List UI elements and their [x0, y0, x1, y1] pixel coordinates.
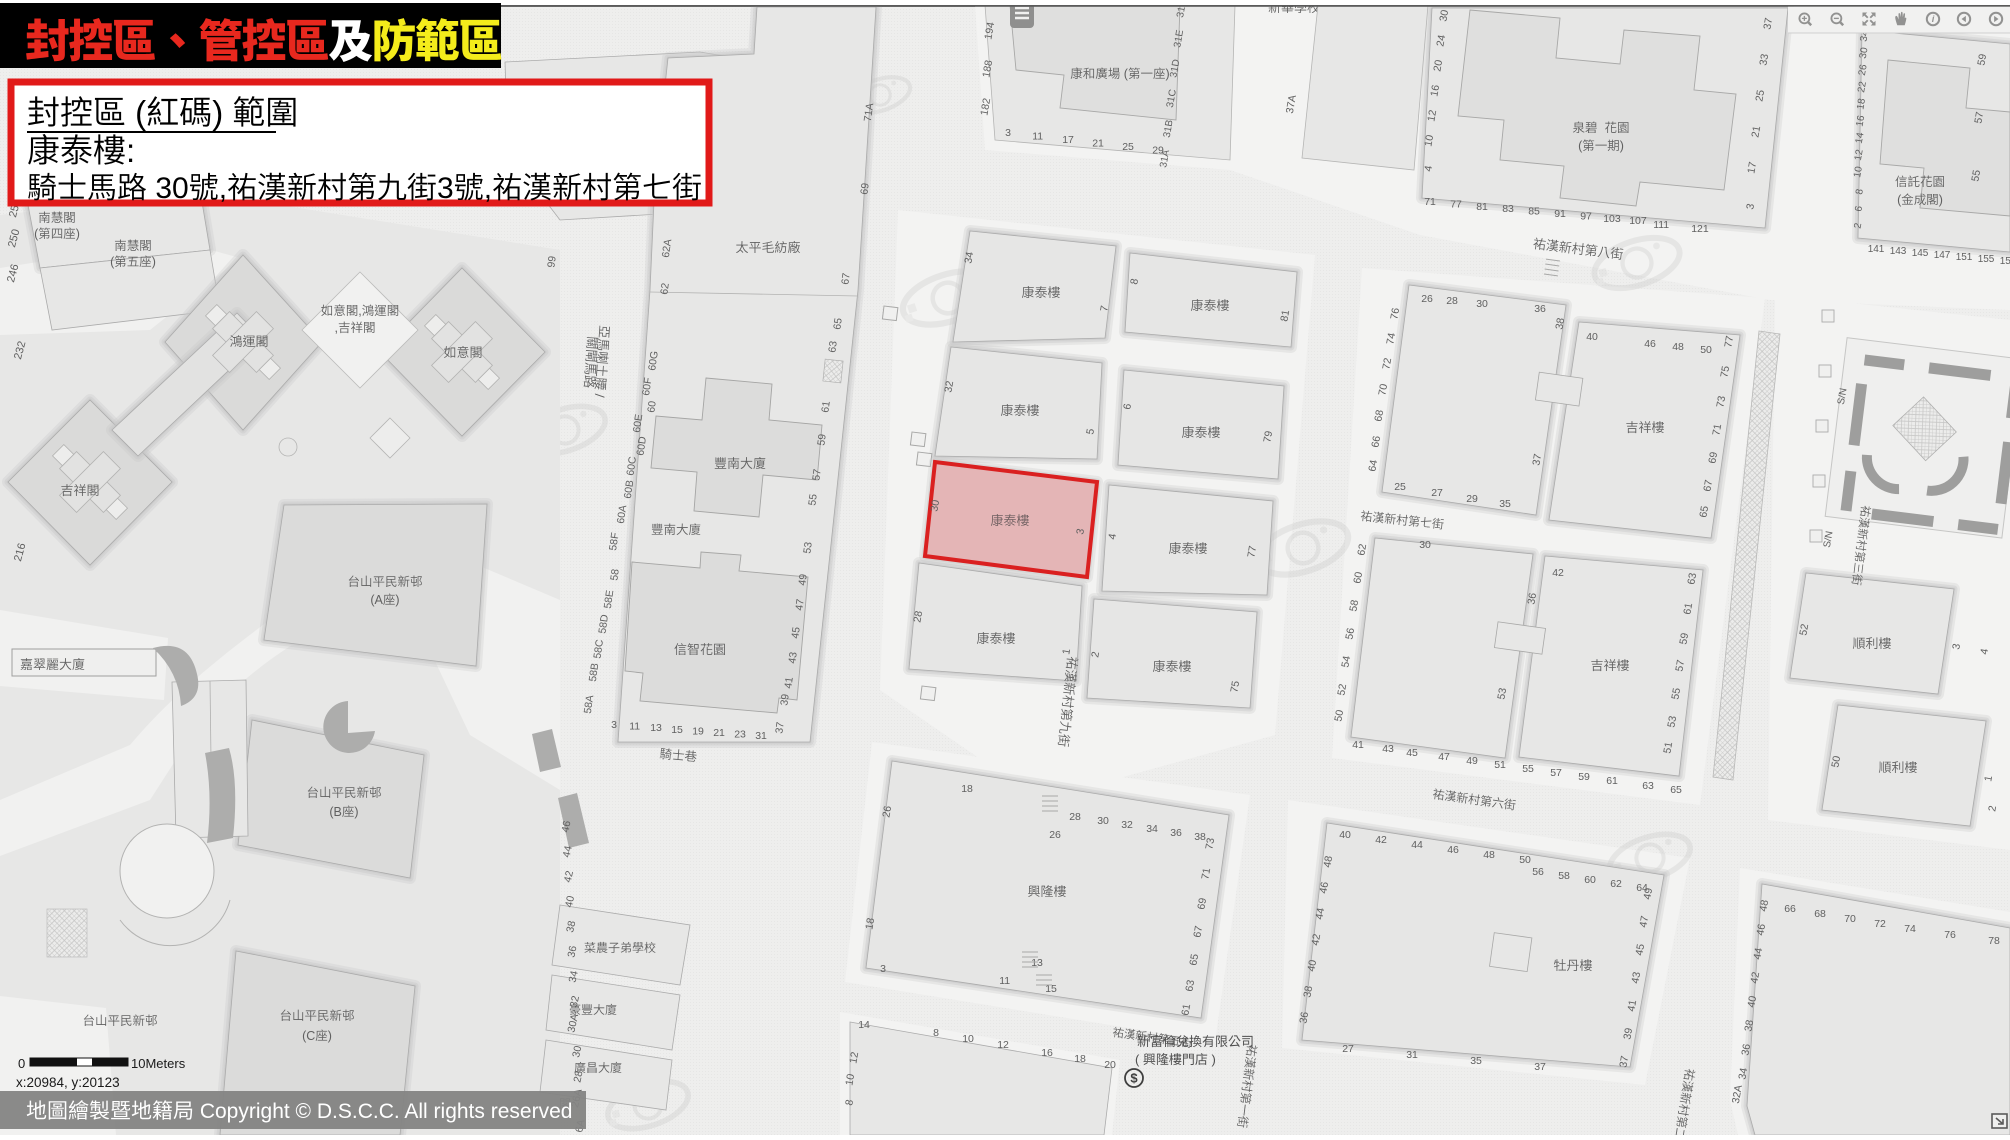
- svg-text:42: 42: [1552, 567, 1564, 579]
- svg-text:38: 38: [1301, 985, 1315, 999]
- svg-text:159: 159: [2000, 256, 2010, 267]
- svg-text:18: 18: [863, 917, 877, 931]
- svg-text:57: 57: [810, 468, 824, 481]
- svg-text:18: 18: [961, 783, 973, 795]
- svg-text:143: 143: [1890, 246, 1907, 257]
- svg-text:26: 26: [880, 805, 894, 819]
- svg-text:155: 155: [1978, 254, 1995, 265]
- svg-text:): ): [1939, 193, 1943, 207]
- svg-text:36: 36: [1525, 592, 1539, 606]
- svg-text:36: 36: [1739, 1043, 1753, 1057]
- svg-text:37: 37: [773, 721, 787, 734]
- svg-text:69: 69: [858, 182, 872, 195]
- svg-text:66: 66: [1784, 903, 1796, 915]
- svg-text:38: 38: [1553, 317, 1567, 331]
- svg-text:111: 111: [1653, 219, 1669, 231]
- svg-text:69: 69: [1195, 897, 1209, 911]
- svg-text:52: 52: [1335, 683, 1349, 697]
- svg-text:58: 58: [1347, 599, 1361, 613]
- svg-text:): ): [354, 805, 358, 819]
- svg-text:): ): [328, 1029, 332, 1043]
- svg-text:73: 73: [1714, 395, 1728, 409]
- svg-text:40: 40: [1339, 829, 1351, 841]
- svg-text:27: 27: [1431, 487, 1443, 499]
- svg-text:72: 72: [1380, 357, 1394, 371]
- svg-text:81: 81: [1476, 201, 1488, 213]
- svg-text:78: 78: [1988, 935, 2000, 947]
- svg-text:107: 107: [1629, 215, 1647, 227]
- svg-text:61: 61: [1179, 1003, 1193, 1017]
- svg-text:141: 141: [1868, 244, 1885, 255]
- svg-text:79: 79: [1261, 430, 1275, 444]
- svg-text:51: 51: [1661, 741, 1675, 755]
- svg-text:40: 40: [1745, 995, 1759, 1009]
- svg-text:48: 48: [1757, 899, 1771, 913]
- svg-text:63: 63: [1685, 572, 1699, 586]
- svg-text:43: 43: [1382, 743, 1394, 755]
- svg-text:): ): [1208, 1052, 1216, 1067]
- svg-text:33: 33: [1757, 53, 1771, 67]
- svg-text:42: 42: [1748, 971, 1762, 985]
- svg-text:65: 65: [1697, 505, 1711, 519]
- svg-text:47: 47: [793, 598, 807, 611]
- svg-text:39: 39: [1621, 1027, 1635, 1041]
- svg-text:59: 59: [1578, 771, 1590, 783]
- svg-text:53: 53: [801, 541, 815, 554]
- svg-text:57: 57: [1972, 111, 1986, 125]
- svg-text:(C: (C: [302, 1029, 315, 1043]
- svg-text:28: 28: [1069, 811, 1081, 823]
- svg-text:11: 11: [629, 721, 640, 733]
- svg-text:56: 56: [1343, 627, 1357, 641]
- svg-text:59: 59: [1975, 53, 1989, 67]
- svg-text:17: 17: [1062, 134, 1074, 146]
- svg-text:34: 34: [962, 251, 976, 265]
- svg-text:3: 3: [611, 719, 617, 731]
- svg-text:103: 103: [1603, 213, 1621, 225]
- svg-text:69: 69: [1706, 451, 1720, 465]
- svg-text:(A: (A: [370, 593, 383, 607]
- svg-text:41: 41: [1352, 739, 1364, 751]
- svg-text:67: 67: [1191, 925, 1205, 939]
- svg-text:46: 46: [1754, 923, 1768, 937]
- svg-text:(: (: [1120, 67, 1128, 81]
- svg-text:27: 27: [1342, 1043, 1354, 1055]
- svg-text:10: 10: [1422, 134, 1436, 148]
- svg-text:83: 83: [1502, 203, 1514, 215]
- svg-text:/: /: [592, 390, 607, 399]
- svg-text:28: 28: [1446, 295, 1458, 307]
- svg-text:58F: 58F: [607, 532, 621, 552]
- svg-text:32: 32: [942, 380, 956, 394]
- svg-text:63: 63: [1642, 780, 1654, 792]
- svg-text:35: 35: [1499, 498, 1511, 510]
- svg-text:50: 50: [1700, 344, 1712, 356]
- svg-text:): ): [212, 94, 232, 131]
- svg-text:43: 43: [1629, 971, 1643, 985]
- svg-text:44: 44: [1751, 947, 1765, 961]
- svg-text:55: 55: [1969, 169, 1983, 183]
- svg-text:45: 45: [1633, 943, 1647, 957]
- svg-text:34: 34: [1736, 1067, 1750, 1081]
- svg-text:): ): [76, 227, 80, 241]
- svg-text:3: 3: [437, 172, 454, 205]
- svg-text:55: 55: [806, 493, 820, 506]
- svg-text:36: 36: [1297, 1011, 1311, 1025]
- svg-text:60: 60: [1351, 571, 1365, 585]
- svg-text:77: 77: [1722, 335, 1736, 349]
- svg-text:55: 55: [1522, 763, 1534, 775]
- svg-text:37: 37: [1530, 453, 1544, 467]
- svg-text:28: 28: [911, 610, 925, 624]
- svg-text:39: 39: [778, 693, 792, 706]
- svg-text:44: 44: [1411, 839, 1423, 851]
- svg-text:50: 50: [1332, 709, 1346, 723]
- svg-text:18: 18: [1074, 1053, 1086, 1065]
- svg-text:38: 38: [1742, 1019, 1756, 1033]
- svg-text:35: 35: [1470, 1055, 1482, 1067]
- svg-text:20: 20: [1104, 1059, 1116, 1071]
- svg-text:145: 145: [1912, 248, 1929, 259]
- svg-text:34: 34: [1146, 823, 1158, 835]
- svg-text:13: 13: [650, 722, 662, 734]
- svg-text:46: 46: [1644, 338, 1656, 350]
- svg-text:61: 61: [1606, 775, 1618, 787]
- svg-text:51: 51: [1494, 759, 1506, 771]
- svg-text:58: 58: [1558, 870, 1570, 882]
- svg-text:54: 54: [1339, 655, 1353, 669]
- svg-text:11: 11: [999, 975, 1010, 987]
- svg-text:81: 81: [1278, 309, 1292, 323]
- svg-text:71: 71: [1424, 196, 1436, 208]
- svg-text:60F: 60F: [640, 377, 654, 397]
- svg-text:30: 30: [1419, 539, 1431, 551]
- svg-text:60: 60: [1584, 874, 1596, 886]
- svg-text:40: 40: [1305, 959, 1319, 973]
- svg-text:76: 76: [1944, 929, 1956, 941]
- svg-text:19: 19: [692, 725, 704, 737]
- svg-text:68: 68: [1372, 409, 1386, 423]
- svg-text:68: 68: [1814, 908, 1826, 920]
- svg-text:55: 55: [1669, 687, 1683, 701]
- svg-text:73: 73: [1203, 837, 1217, 851]
- svg-text:11: 11: [1032, 131, 1043, 143]
- svg-text:21: 21: [713, 727, 725, 739]
- svg-text:52: 52: [1797, 623, 1811, 637]
- svg-text:45: 45: [1406, 747, 1418, 759]
- svg-text:): ): [152, 255, 156, 269]
- svg-text:,: ,: [358, 304, 361, 318]
- svg-text:49: 49: [1466, 755, 1478, 767]
- svg-text:57: 57: [1550, 767, 1562, 779]
- svg-text:76: 76: [1388, 307, 1402, 321]
- svg-text:23: 23: [734, 729, 746, 741]
- svg-text:Copyright © D.S.C.C. All right: Copyright © D.S.C.C. All rights reserved: [194, 1100, 572, 1123]
- svg-text:25: 25: [1122, 141, 1134, 153]
- svg-text:77: 77: [1245, 545, 1259, 559]
- svg-text:37: 37: [1617, 1055, 1631, 1069]
- svg-text:61: 61: [1681, 602, 1695, 616]
- svg-text:,: ,: [335, 321, 338, 335]
- svg-text:47: 47: [1637, 915, 1651, 929]
- svg-text:36: 36: [1170, 827, 1182, 839]
- svg-text:151: 151: [1956, 252, 1973, 263]
- svg-text:74: 74: [1904, 923, 1916, 935]
- svg-text:30: 30: [1097, 815, 1109, 827]
- svg-text:77: 77: [1450, 198, 1462, 210]
- svg-text:58: 58: [608, 568, 622, 581]
- svg-text:63: 63: [826, 340, 840, 353]
- svg-text:26: 26: [1421, 293, 1433, 305]
- svg-text:74: 74: [1384, 332, 1398, 346]
- svg-text:42: 42: [1375, 834, 1387, 846]
- svg-text:67: 67: [1701, 479, 1715, 493]
- svg-text:12: 12: [997, 1039, 1009, 1051]
- svg-text:,: ,: [484, 172, 492, 205]
- svg-text:72: 72: [1874, 918, 1886, 930]
- svg-text:97: 97: [1580, 210, 1592, 222]
- svg-text:75: 75: [1228, 680, 1242, 694]
- svg-text:62: 62: [1610, 878, 1622, 890]
- svg-text:31: 31: [755, 730, 767, 742]
- svg-text:): ): [395, 593, 399, 607]
- svg-text:48: 48: [1483, 849, 1495, 861]
- svg-text:65: 65: [831, 317, 845, 330]
- svg-text:10Meters: 10Meters: [131, 1056, 186, 1071]
- svg-text:42: 42: [1309, 933, 1323, 947]
- svg-text:71: 71: [1710, 423, 1724, 437]
- svg-text:48: 48: [1321, 855, 1335, 869]
- svg-text:30: 30: [1437, 9, 1451, 23]
- svg-text:57: 57: [1673, 659, 1687, 673]
- svg-text:46: 46: [1317, 881, 1331, 895]
- svg-text:37: 37: [1761, 17, 1775, 31]
- svg-text:40: 40: [1586, 331, 1598, 343]
- svg-text:60: 60: [645, 400, 659, 413]
- svg-text:0: 0: [18, 1056, 25, 1071]
- svg-text:67: 67: [839, 272, 853, 285]
- svg-text:3: 3: [1005, 127, 1011, 139]
- svg-text:53: 53: [1665, 715, 1679, 729]
- svg-text:70: 70: [1376, 383, 1390, 397]
- svg-text:59: 59: [1677, 632, 1691, 646]
- svg-text:48: 48: [1672, 341, 1684, 353]
- svg-text:21: 21: [1749, 125, 1763, 139]
- svg-text:,: ,: [219, 172, 227, 205]
- svg-text:10: 10: [962, 1033, 974, 1045]
- svg-text:91: 91: [1554, 208, 1566, 220]
- svg-text:43: 43: [786, 651, 800, 664]
- svg-text:65: 65: [1670, 784, 1682, 796]
- svg-text:37: 37: [1534, 1061, 1546, 1073]
- svg-text:75: 75: [1718, 365, 1732, 379]
- svg-text:56: 56: [1532, 866, 1544, 878]
- svg-text:$: $: [1130, 1071, 1138, 1086]
- svg-text:41: 41: [782, 676, 796, 689]
- svg-text:17: 17: [1745, 161, 1759, 175]
- svg-text:16: 16: [1041, 1047, 1053, 1059]
- svg-text:29: 29: [1466, 493, 1478, 505]
- svg-text:49: 49: [796, 573, 810, 586]
- svg-text:25: 25: [1394, 481, 1406, 493]
- svg-text:62: 62: [658, 282, 672, 295]
- svg-text:26: 26: [1049, 829, 1061, 841]
- svg-text:64: 64: [1366, 459, 1380, 473]
- svg-text:12: 12: [847, 1051, 861, 1065]
- svg-text:49: 49: [1641, 887, 1655, 901]
- svg-text:10: 10: [843, 1073, 857, 1087]
- svg-text:21: 21: [1092, 138, 1104, 150]
- svg-text:71: 71: [1199, 867, 1213, 881]
- svg-text:x:20984, y:20123: x:20984, y:20123: [16, 1075, 120, 1090]
- svg-text:65: 65: [1187, 953, 1201, 967]
- svg-text:41: 41: [1625, 999, 1639, 1013]
- svg-text:32: 32: [1121, 819, 1133, 831]
- svg-text:8: 8: [933, 1027, 939, 1039]
- svg-text:14: 14: [858, 1019, 870, 1031]
- svg-text:50: 50: [1829, 755, 1843, 769]
- svg-text:45: 45: [789, 626, 803, 639]
- svg-text:50: 50: [1519, 854, 1531, 866]
- svg-text:61: 61: [819, 400, 833, 413]
- svg-text:(: (: [126, 94, 146, 131]
- svg-text:85: 85: [1528, 206, 1540, 218]
- svg-text:47: 47: [1438, 751, 1450, 763]
- svg-text:20: 20: [1431, 59, 1445, 73]
- svg-text:63: 63: [1183, 979, 1197, 993]
- svg-text:62: 62: [1355, 543, 1369, 557]
- svg-text:(B: (B: [329, 805, 342, 819]
- svg-text:147: 147: [1934, 250, 1951, 261]
- svg-text:31: 31: [1406, 1049, 1418, 1061]
- svg-text:66: 66: [1369, 435, 1383, 449]
- svg-text:46: 46: [1447, 844, 1459, 856]
- svg-text:99: 99: [545, 255, 559, 268]
- svg-text:): ): [1620, 139, 1624, 153]
- svg-text:59: 59: [815, 433, 829, 446]
- svg-text:30: 30: [1476, 298, 1488, 310]
- svg-text:121: 121: [1691, 223, 1709, 235]
- svg-text:44: 44: [1313, 907, 1327, 921]
- svg-text:(: (: [1135, 1052, 1143, 1067]
- svg-text:12: 12: [1425, 109, 1439, 123]
- svg-text:15: 15: [671, 724, 683, 736]
- svg-text:70: 70: [1844, 913, 1856, 925]
- svg-text:36: 36: [1534, 303, 1546, 315]
- svg-text:30: 30: [147, 172, 189, 205]
- svg-text:16: 16: [1428, 84, 1442, 98]
- svg-text:3: 3: [880, 963, 886, 975]
- svg-text::: :: [126, 132, 135, 169]
- svg-text:24: 24: [1434, 34, 1448, 48]
- svg-text:i: i: [1932, 14, 1935, 24]
- svg-text:30: 30: [928, 499, 942, 513]
- svg-text:25: 25: [1753, 89, 1767, 103]
- svg-text:53: 53: [1495, 687, 1509, 701]
